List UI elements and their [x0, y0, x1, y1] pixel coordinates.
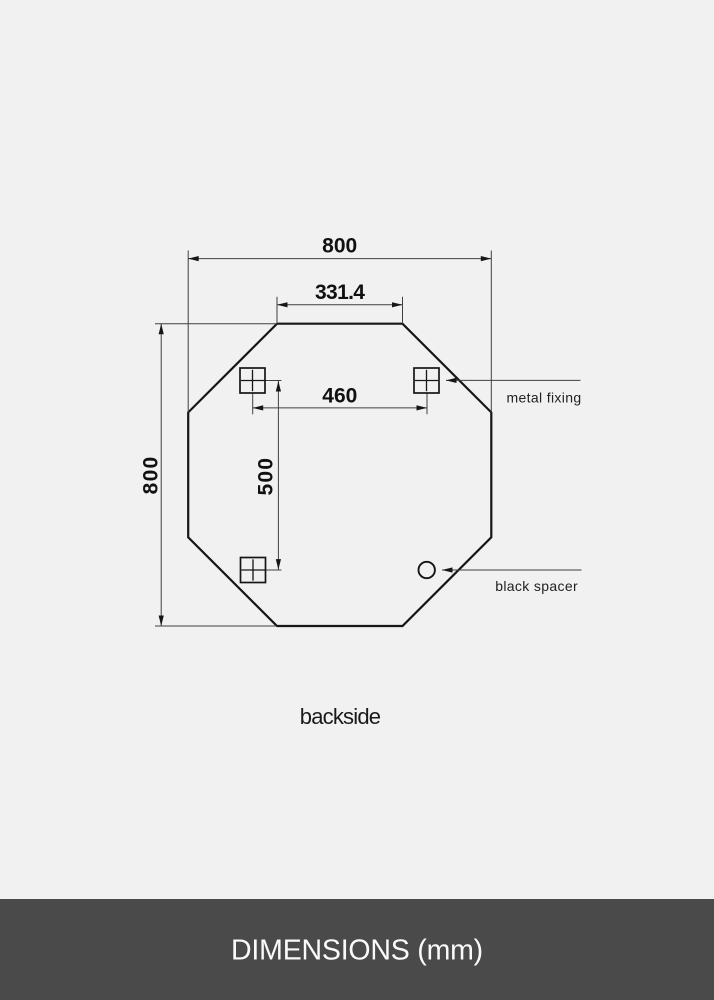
svg-text:metal fixing: metal fixing: [506, 390, 581, 406]
svg-text:500: 500: [255, 457, 278, 496]
svg-text:331.4: 331.4: [315, 281, 365, 304]
svg-text:800: 800: [322, 235, 357, 258]
svg-text:800: 800: [140, 456, 163, 495]
svg-text:black spacer: black spacer: [495, 578, 578, 594]
svg-text:DIMENSIONS (mm): DIMENSIONS (mm): [231, 935, 483, 967]
svg-text:460: 460: [322, 385, 357, 408]
svg-text:backside: backside: [300, 704, 381, 729]
